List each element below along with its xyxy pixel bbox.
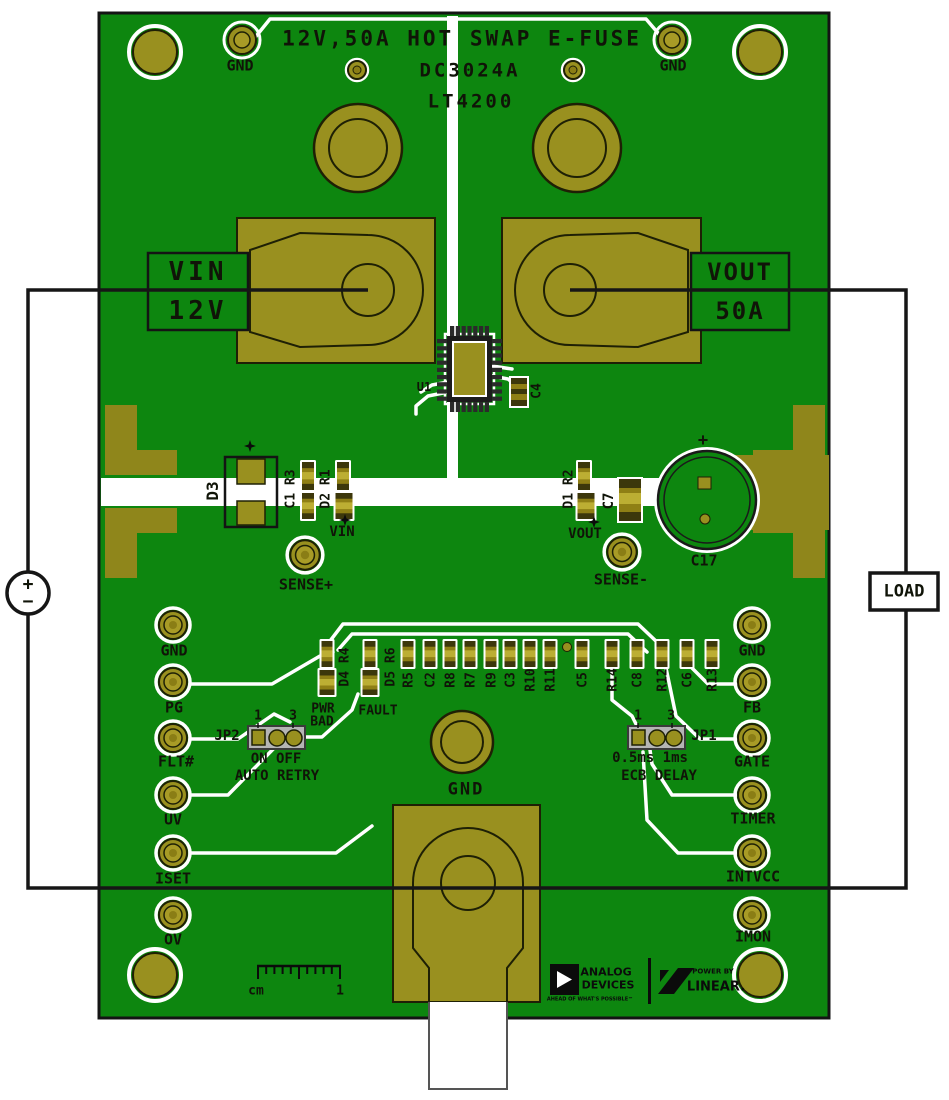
test-point	[156, 721, 190, 755]
load-label: LOAD	[884, 584, 925, 601]
right-pin-timer-label: TIMER	[730, 812, 775, 827]
c17-label: C17	[690, 554, 717, 569]
jp1-pin1-label: 1	[634, 710, 642, 723]
linear-logo-text-top: POWER BY	[692, 969, 733, 976]
vin-value: 12V	[169, 298, 228, 324]
ruler-unit-label: cm	[248, 985, 264, 998]
test-point	[156, 836, 190, 870]
gnd-center-pad	[431, 711, 493, 773]
test-point	[156, 778, 190, 812]
smd-component	[463, 639, 478, 669]
gnd-center-label: GND	[448, 782, 485, 799]
left-pin-pg-label: PG	[165, 701, 183, 716]
c17-plus-mark: +	[698, 433, 708, 450]
right-pin-gnd-label: GND	[738, 644, 765, 659]
smd-label: R11	[545, 668, 558, 691]
smd-component	[361, 668, 380, 697]
smd-component	[300, 491, 316, 521]
source-minus-mark: −	[23, 593, 34, 611]
smd-component	[503, 639, 518, 669]
smd-component	[484, 639, 499, 669]
smd-label: R10	[525, 668, 538, 691]
adi-logo-text-bottom: DEVICES	[582, 980, 635, 991]
via-dot	[563, 643, 572, 652]
smd-label: R12	[657, 668, 670, 691]
bad-label: BAD	[310, 716, 333, 729]
bottom-gnd-pad	[393, 805, 540, 1002]
gnd-top-right-label: GND	[659, 59, 686, 74]
left-pin-uv-label: UV	[164, 813, 182, 828]
vin-label: VIN	[169, 259, 228, 285]
adi-tagline: AHEAD OF WHAT'S POSSIBLE™	[547, 998, 633, 1003]
smd-component	[523, 639, 538, 669]
linear-logo-text-bottom: LINEAR.	[687, 981, 745, 994]
c4-label: C4	[531, 383, 544, 399]
smd-component	[705, 639, 720, 669]
jp1-label: JP1	[691, 729, 716, 743]
silkscreen-band	[101, 478, 741, 506]
test-point	[735, 836, 769, 870]
vout-net-label: VOUT	[568, 527, 602, 541]
test-point	[604, 534, 640, 570]
left-pin-gnd-label: GND	[160, 644, 187, 659]
board-title-line2: DC3024A	[419, 62, 520, 81]
smd-label: D5 R6	[385, 647, 398, 686]
left-pin-ov-label: OV	[164, 933, 182, 948]
smd-label: C6	[682, 672, 695, 688]
smd-component	[320, 639, 335, 669]
smd-label: C5	[577, 672, 590, 688]
test-point	[735, 778, 769, 812]
u1-label: U1	[417, 381, 431, 393]
smd-component	[300, 460, 316, 492]
smd-label: C8	[632, 672, 645, 688]
smd-component	[655, 639, 670, 669]
smd-component	[363, 639, 378, 669]
adi-logo-text-top: ANALOG	[580, 967, 631, 978]
component-c4	[509, 376, 529, 408]
c7-label: C7	[602, 493, 616, 510]
test-point	[156, 608, 190, 642]
smd-component	[576, 460, 592, 492]
vout-value: 50A	[715, 299, 764, 323]
jp1-ecb-delay-label: ECB DELAY	[621, 769, 697, 783]
sense-plus-label: SENSE+	[279, 578, 333, 593]
smd-component	[575, 639, 590, 669]
jp2-auto-retry-label: AUTO RETRY	[235, 769, 319, 783]
pcb-screenshot: 12V,50A HOT SWAP E-FUSE DC3024A LT4200 G…	[0, 0, 949, 1100]
d2-r1-label: D2 R1	[320, 469, 333, 508]
gnd-top-left-label: GND	[226, 59, 253, 74]
d1-r2-label: D1 R2	[563, 469, 576, 508]
smd-component	[318, 668, 337, 697]
smd-component	[335, 460, 351, 492]
right-pin-intvcc-label: INTVCC	[726, 870, 780, 885]
smd-component	[443, 639, 458, 669]
jp1-pin3-label: 3	[667, 710, 675, 723]
smd-component	[423, 639, 438, 669]
right-pin-gate-label: GATE	[734, 755, 770, 770]
pcb-artwork	[0, 0, 949, 1100]
jumper-jp2	[248, 723, 305, 749]
jp2-label: JP2	[214, 729, 239, 743]
test-point	[735, 608, 769, 642]
smd-label: R8	[445, 672, 458, 688]
bottom-lug-tab	[429, 1002, 507, 1089]
test-point	[735, 665, 769, 699]
component-c17	[658, 451, 756, 549]
jp2-on-off-label: ON OFF	[251, 752, 302, 766]
smd-component	[576, 491, 597, 521]
smd-label: R13	[707, 668, 720, 691]
smd-label: R9	[486, 672, 499, 688]
smd-label: R7	[465, 672, 478, 688]
c1-r3-label: C1 R3	[285, 469, 298, 508]
left-pin-iset-label: ISET	[155, 872, 191, 887]
board-title-line1: 12V,50A HOT SWAP E-FUSE	[282, 29, 642, 50]
jp2-pin3-label: 3	[289, 710, 297, 723]
vout-label: VOUT	[707, 260, 773, 284]
smd-component	[543, 639, 558, 669]
test-point	[156, 665, 190, 699]
smd-label: D4 R4	[339, 647, 352, 686]
left-pin-flt-label: FLT#	[158, 755, 194, 770]
smd-component	[334, 491, 355, 521]
jumper-jp1	[628, 723, 685, 749]
board-title-line3: LT4200	[428, 93, 515, 112]
smd-component	[680, 639, 695, 669]
test-point	[735, 721, 769, 755]
smd-label: R14	[607, 668, 620, 691]
smd-label: R5	[403, 672, 416, 688]
test-point	[156, 898, 190, 932]
smd-label: C2	[425, 672, 438, 688]
smd-label: C3	[505, 672, 518, 688]
ruler-mark-label: 1	[336, 985, 344, 998]
jp2-pin1-label: 1	[254, 710, 262, 723]
right-pin-imon-label: IMON	[735, 930, 771, 945]
fault-label: FAULT	[358, 705, 397, 718]
jp1-delay-values-label: 0.5ms 1ms	[612, 751, 688, 765]
smd-component	[401, 639, 416, 669]
vin-net-label: VIN	[329, 525, 354, 539]
right-pin-fb-label: FB	[743, 701, 761, 716]
d3-label: D3	[205, 481, 221, 500]
smd-component	[605, 639, 620, 669]
smd-component	[630, 639, 645, 669]
sense-minus-label: SENSE-	[594, 573, 648, 588]
test-point	[287, 537, 323, 573]
component-c7	[617, 477, 643, 523]
